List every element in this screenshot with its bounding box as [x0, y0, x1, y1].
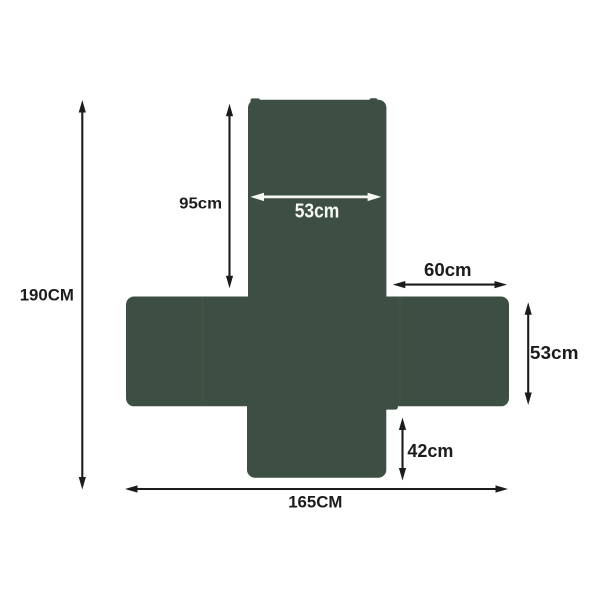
svg-text:165CM: 165CM — [288, 493, 342, 512]
svg-text:53cm: 53cm — [295, 201, 340, 223]
svg-text:53cm: 53cm — [530, 342, 579, 363]
svg-text:60cm: 60cm — [424, 259, 472, 280]
svg-text:95cm: 95cm — [179, 195, 222, 212]
svg-text:190CM: 190CM — [20, 286, 74, 305]
svg-text:42cm: 42cm — [407, 441, 453, 461]
